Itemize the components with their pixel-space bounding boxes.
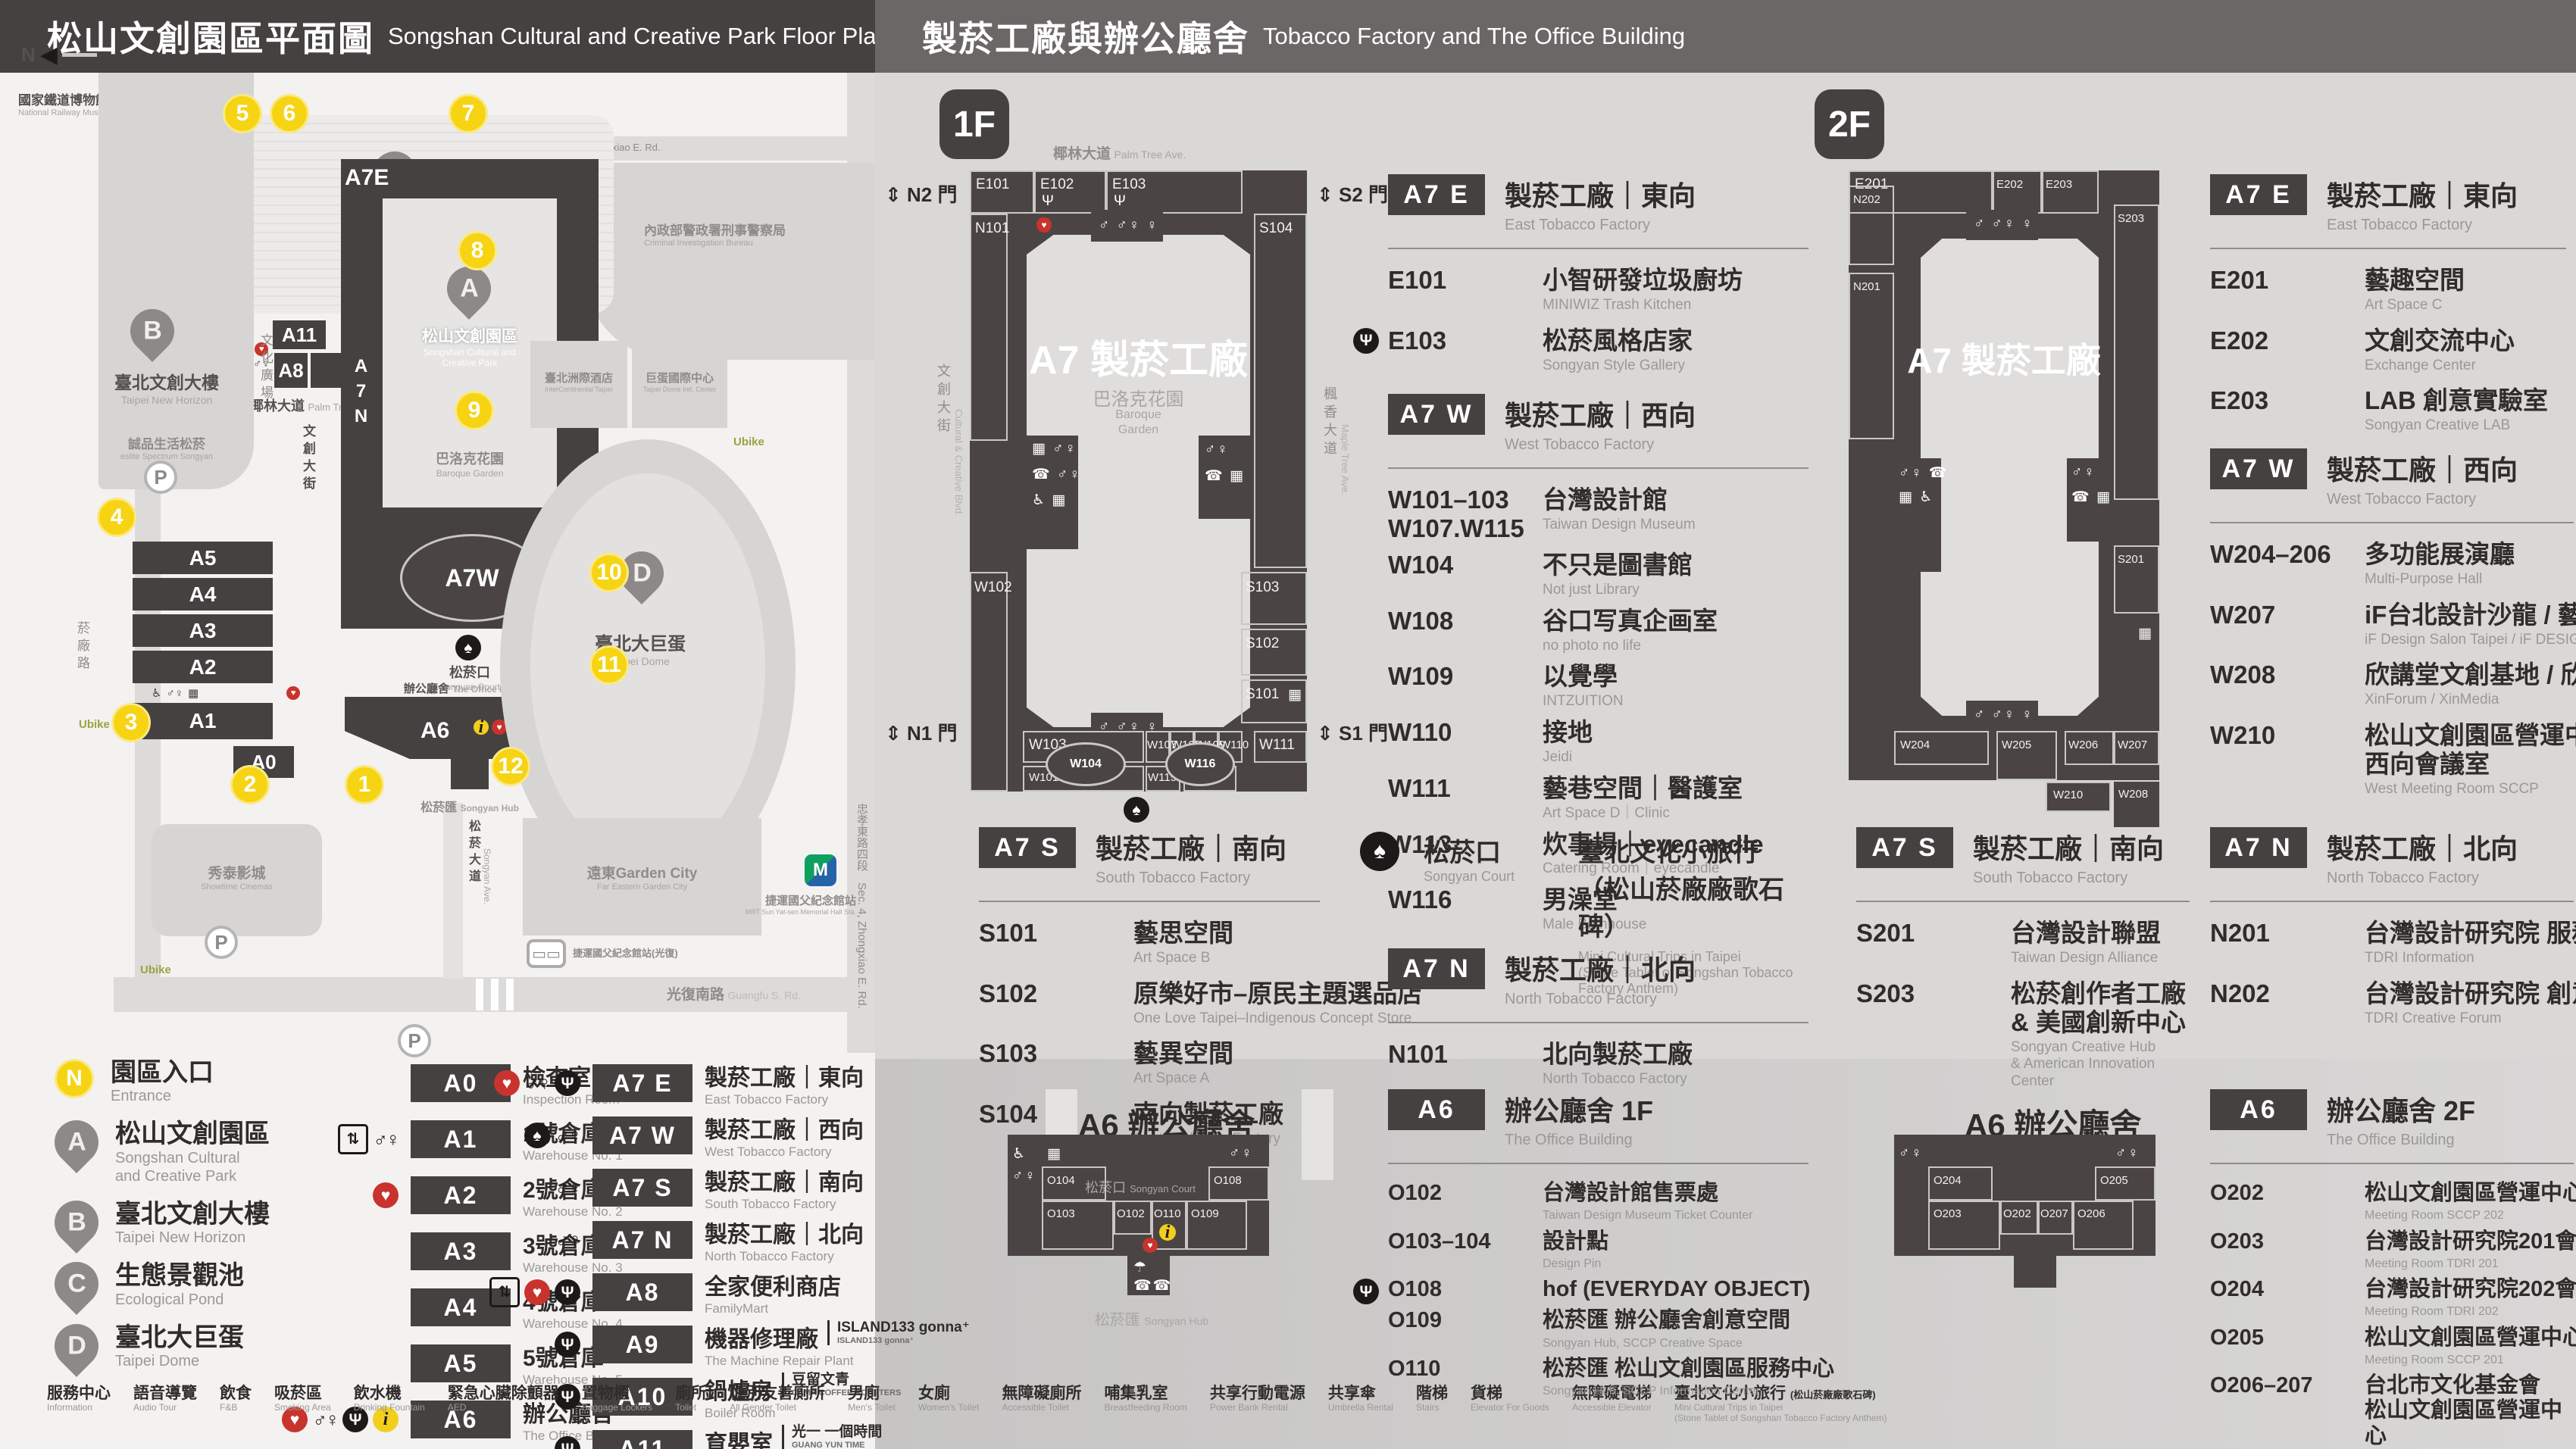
information-icon [474,720,489,735]
bldg-new-horizon [98,73,254,489]
entrance-marker-8: 8 [458,231,497,270]
toilet-icon: ♂♀ [1899,1145,1924,1162]
map-label-a7n: A7N [350,356,371,431]
street-guangfu-label: 光復南路 Guangfu S. Rd. [667,983,801,1004]
a7e-badge: A7 E [2210,174,2307,215]
section-2f-a7w: A7 W 製菸工廠｜西向 West Tobacco Factory W204–2… [2210,448,2574,810]
amenity-item: 性別友善廁所 All Gender Toilet [730,1385,825,1413]
legend-pin-row: C C 生態景觀池 Ecological Pond [55,1262,312,1308]
toilet-icon: ♂ ♂♀ ♀ [1974,707,2034,723]
legend-row: A7 W 製菸工廠｜西向 West Tobacco Factory [491,1111,870,1160]
compass-n: N [21,43,36,67]
room-row: E103 松菸風格店家 Songyan Style Gallery [1388,326,1809,375]
entrance-marker-2: 2 [230,765,270,804]
map-icons-a1: ♿ ♂♀ ▦ [152,686,300,700]
entrance-marker-6: 6 [270,94,309,133]
office1f-hub-label: 松菸匯 Songyan Hub [1076,1307,1227,1329]
toilet-icon [524,1070,550,1096]
amenity-item: 飲水機 Drinking Fountain [354,1385,425,1413]
road-songyan-ave [443,803,463,979]
parking-icon: P [205,926,238,959]
map-block-a5: A5 [133,542,273,574]
food-beverage-icon [555,1070,580,1096]
toilet-icon [555,1123,580,1148]
phone-icon: ☎ ▦ [2071,489,2112,506]
section-1f-a6: A6 辦公廳舍 1F The Office Building O102 台灣設計… [1388,1089,1809,1404]
entrance-marker-4: 4 [97,498,136,537]
food-beverage-icon [555,1332,580,1357]
amenity-item: 女廁 Women's Toilet [918,1385,980,1413]
floor-2f-badge: 2F [1815,89,1884,159]
a7s-badge: A7 S [979,827,1076,868]
room-row: W110 接地 Jeidi [1388,718,1809,767]
toilet-icon: ♂♀ [1205,442,1230,458]
compass: N ◀ [21,42,97,68]
songyan-court-icon [1360,832,1399,871]
aed-icon [1143,1238,1158,1253]
accessible-icon: ♿ [152,686,161,700]
toilet-icon: ♂♀ [2071,464,2096,481]
map-block-a2: A2 [133,651,273,683]
entrance-marker-3: 3 [111,703,151,742]
floor-1f-badge: 1F [939,89,1009,159]
room-row: S101 藝思空間Art Space B [979,919,1320,967]
amenity-item: 無障礙廁所 Accessible Toilet [1002,1385,1082,1413]
a7e-badge: A7 E [1388,174,1485,215]
entrance-marker-5: 5 [223,94,262,133]
room-row: O202 松山文創園區營運中心202會議室 Meeting Room SCCP … [2210,1181,2574,1223]
aed-icon [1036,217,1052,233]
map-pin-icon: A [45,1111,108,1173]
ubike-icon: Ubike [733,436,764,448]
room-row: O203 台灣設計研究院201會議室 Meeting Room TDRI 201 [2210,1229,2574,1272]
locker-icon: ▦ [188,686,199,700]
poi-bus-stop: 捷運國父紀念館站(光復) [573,945,678,960]
legend-pin-row: N N 園區入口 Entrance [55,1059,312,1105]
map-block-a4: A4 [133,578,273,611]
amenity-item: 共享行動電源 Power Bank Rental [1210,1385,1305,1413]
brand-label: 光一 一個時間 GUANG YUN TIME [782,1425,882,1449]
gate-s1: ⇕ S1 門 [1317,718,1388,746]
crosswalk [476,979,521,1010]
map-label-hub: 松菸匯 Songyan Hub [409,797,530,815]
plan1f-palm-label: 椰林大道 Palm Tree Ave. [1053,142,1186,163]
right-header: 製菸工廠與辦公廳舍 Tobacco Factory and The Office… [875,0,2576,73]
compass-arrow-icon: ◀ [40,42,58,68]
accessible-icon: ♿ [1012,1145,1027,1163]
left-header: 松山文創園區平面圖 Songshan Cultural and Creative… [0,0,875,73]
section-2f-a7n: A7 N 製菸工廠｜北向 North Tobacco Factory N201 … [2210,827,2574,1039]
bldg-cib [583,163,875,360]
room-row: W108 谷口写真企画室 no photo no life [1388,607,1809,655]
a7w-badge: A7 W [1388,394,1485,435]
plan1f-maple-en: Maple Tree Ave. [1340,424,1351,495]
poi-showtime: 秀泰影城 Showtime Cinemas [163,862,311,892]
toilet-icon: ♂ ♂♀ ♀ [1974,216,2034,233]
room-row: W204–206 多功能展演廳 Multi-Purpose Hall [2210,540,2574,589]
entrance-marker-12: 12 [491,747,530,786]
room-row: W101–103W107.W115 台灣設計館 Taiwan Design Mu… [1388,486,1809,543]
toilet-icon: ♂♀ [1229,1145,1254,1162]
amenity-item: 廁所 Toilet [675,1385,707,1413]
elevator-icon: ▦ [2138,625,2153,642]
street-ccblvd: 文創大街 [299,424,317,494]
legend-pins: N N 園區入口 Entrance A A 松山文創園區 Songshan Cu… [55,1059,312,1370]
section-1f-a7e: A7 E 製菸工廠｜東向 East Tobacco Factory E101 小… [1388,174,1809,386]
ubike-icon: Ubike [79,718,110,731]
plan-2f: E201 E202 E203 N202 N201 S203 S201 ▦ A7 … [1849,170,2159,780]
street-yanchang: 菸廠路 [73,621,92,673]
room-row: N201 台灣設計研究院 服務台TDRI Information [2210,919,2574,967]
map-label-a7e: A7E [345,165,389,191]
room-row: W210 松山文創園區營運中心西向會議室 West Meeting Room S… [2210,721,2574,798]
parking-icon: P [144,461,177,494]
map-pin-icon: B [45,1191,108,1254]
toilet-icon: ♂♀ [1012,1168,1037,1185]
room-w116: W116 [1165,742,1235,786]
ubike-icon: Ubike [140,963,171,976]
locker-icon: ▦ [1047,1145,1062,1163]
bus-icon: ▭▭ [527,939,566,968]
section-2f-a6: A6 辦公廳舍 2F The Office Building O202 松山文創… [2210,1089,2574,1449]
map-pin-icon: D [45,1315,108,1377]
locker-icon: ▦ ♿ [1899,489,1934,506]
room-row: S201 台灣設計聯盟 Taiwan Design Alliance [1856,919,2190,967]
restaurant-icon: Ψ [1042,193,1055,210]
legend-row: A11 育嬰室 光一 一個時間 GUANG YUN TIME The Nurse… [491,1425,870,1449]
map-block-a11: A11 [273,320,326,349]
elevator-icon: ▦ [1288,686,1303,704]
room-row: E201 藝趣空間Art Space C [2210,266,2566,314]
room-w104: W104 [1046,742,1126,786]
street-songyan-ave-en: Songyan Ave. [482,848,492,904]
a7n-badge: A7 N [1388,948,1485,989]
umbrella-icon: ☂ [1133,1259,1148,1276]
a7s-badge: A7 S [1856,827,1953,868]
map-pin-icon: N [55,1059,94,1098]
room-row: O103–104 設計點Design Pin [1388,1229,1809,1272]
parking-icon: P [398,1024,431,1057]
songyan-court-icon [1124,797,1149,823]
entrance-marker-7: 7 [449,94,488,133]
plan2f-w208: W208 [2114,782,2159,827]
street-zhongxiao-label: 忠孝東路四段 Sec. 4, Zhongxiao E. Rd. [854,803,870,1009]
a7n-badge: A7 N [2210,827,2307,868]
plan1f-ccblvd: 文創大街 [933,364,953,436]
section-2f-a7s: A7 S 製菸工廠｜南向 South Tobacco Factory S201 … [1856,827,2190,1103]
room-row: W207 iF台北設計沙龍 / 藝符設計 iF Design Salon Tai… [2210,601,2574,649]
legend-row: A7 S 製菸工廠｜南向 South Tobacco Factory [491,1163,870,1212]
brand-label: ISLAND133 gonna⁺ ISLAND133 gonna⁺ [827,1320,970,1345]
map-pin-icon: C [45,1253,108,1315]
metro-icon: M [805,854,836,886]
room-row: S203 松菸創作者工廠& 美國創新中心 Songyan Creative Hu… [1856,979,2190,1091]
toilet-icon: ♂♀ ☎ [1899,464,1948,482]
toilet-icon [555,1227,580,1253]
plan-office-1f: ♿ ♂♀ ▦ ♂♀ 松菸口 Songyan Court O104 O108 O1… [1008,1135,1269,1256]
street-cultural-plaza: 文化廣場 [256,333,275,403]
a6-badge: A6 [1388,1089,1485,1130]
legend-pin-row: D D 臺北大巨蛋 Taipei Dome [55,1324,312,1370]
map-block-a1: A1 [133,703,273,739]
street-songyan-ave: 松菸大道 [464,820,482,886]
left-header-title-en: Songshan Cultural and Creative Park Floo… [388,23,889,50]
office1f-pillar [1302,1089,1333,1180]
legend-pin-row: B B 臺北文創大樓 Taipei New Horizon [55,1201,312,1247]
songyan-court-icon [455,635,481,660]
room-row: E202 文創交流中心Exchange Center [2210,326,2566,375]
amenity-item: 服務中心 Information [47,1385,111,1413]
aed-icon [524,1279,550,1305]
phone-icon: ☎ ♂♀ [1032,466,1081,483]
room-row: E203 LAB 創意實驗室Songyan Creative LAB [2210,386,2566,435]
room-row: O109 松菸匯 辦公廳舍創意空間Songyan Hub, SCCP Creat… [1388,1308,1809,1351]
aed-icon [373,1182,399,1208]
toilet-icon: ♂♀ [166,687,183,700]
toilet-icon [555,1175,580,1201]
a7w-badge: A7 W [2210,448,2307,489]
right-header-title-zh: 製菸工廠與辦公廳舍 [922,11,1249,61]
food-beverage-icon [555,1279,580,1305]
accessible-icon: ♿ ▦ [1032,492,1067,509]
information-icon [1159,1224,1176,1241]
plan1f-maple: 楓香大道 [1320,386,1340,459]
office1f-stub: ☂ ☎☎ [1127,1256,1170,1295]
phone-icon: ☎ ▦ [1205,467,1245,485]
room-row: W208 欣講堂文創基地 / 欣傳媒 XinForum / XinMedia [2210,660,2574,709]
amenity-item: 飲食 F&B [220,1385,252,1413]
legend-row: A7 E 製菸工廠｜東向 East Tobacco Factory [491,1059,870,1107]
section-1f-a7n: A7 N 製菸工廠｜北向 North Tobacco Factory N101 … [1388,948,1809,1101]
gate-n2: ⇕ N2 門 [885,180,957,208]
room-row: O108 hof (EVERYDAY OBJECT) [1388,1277,1809,1302]
amenity-item: 哺集乳室 Breastfeeding Room [1105,1385,1187,1413]
room-row: O204 台灣設計研究院202會議室 Meeting Room TDRI 202 [2210,1277,2574,1319]
room-row: W109 以覺學 INTZUITION [1388,662,1809,710]
room-row: N202 台灣設計研究院 創意劇場TDRI Creative Forum [2210,979,2574,1028]
amenity-item: 男廁 Men's Toilet [848,1385,896,1413]
poi-new-horizon: 臺北文創大樓 Taipei New Horizon [91,368,242,406]
a6-badge: A6 [2210,1089,2307,1130]
amenity-item: 語音導覽 Audio Tour [133,1385,197,1413]
room-row: E101 小智研發垃圾廚坊 MINIWIZ Trash Kitchen [1388,266,1809,314]
floor-plan-poster: 松山文創園區平面圖 Songshan Cultural and Creative… [0,0,2576,1449]
poi-garden-city: 遠東Garden City Far Eastern Garden City [546,862,739,892]
legend-row: A9 機器修理廠 ISLAND133 gonna⁺ ISLAND133 gonn… [491,1320,870,1369]
room-row: N101 北向製菸工廠North Tobacco Factory [1388,1040,1809,1088]
plan-1f: E101 E102 E103 Ψ Ψ N101 S104 S103 S102 S… [970,170,1307,792]
room-row: O110 松菸匯 松山文創園區服務中心Songyan Hub, SCCP Inf… [1388,1357,1809,1399]
room-row: O205 松山文創園區營運中心201會議室 Meeting Room SCCP … [2210,1326,2574,1368]
aed-icon [286,686,300,700]
room-row: S102 原樂好市–原民主題選品店One Love Taipei–Indigen… [979,979,1320,1028]
poi-mrt: 捷運國父紀念館站 MRT Sun Yat-sen Memorial Hall S… [705,892,856,916]
toilet-icon: ♂ ♂♀ ♀ [1099,217,1159,234]
entrance-marker-10: 10 [589,553,629,592]
map-label-baroque: 巴洛克花園 Baroque Garden [383,448,557,479]
room-row: O206–207 台北市文化基金會松山文創園區營運中心 Taipei Cultu… [2210,1373,2574,1449]
gate-n1: ⇕ N1 門 [885,718,957,746]
room-row: O102 台灣設計館售票處Taiwan Design Museum Ticket… [1388,1181,1809,1223]
legend-pin-row: A A 松山文創園區 Songshan Cultural and Creativ… [55,1120,312,1185]
elevator-icon [489,1277,520,1307]
amenity-item: 共享傘 Umbrella Rental [1328,1385,1393,1413]
room-row: W104 不只是圖書館 Not just Library [1388,551,1809,599]
right-header-title-en: Tobacco Factory and The Office Building [1263,23,1685,50]
room-row: S103 藝異空間Art Space A [979,1039,1320,1088]
map-label-a6: A6 [420,718,449,744]
entrance-marker-11: 11 [589,645,629,685]
poi-eslite: 誠品生活松菸 eslite Spectrum Songyan [91,433,242,461]
amenity-item: 置物櫃 Baggage Lockers [582,1385,652,1413]
legend-row: A7 N 製菸工廠｜北向 North Tobacco Factory [491,1216,870,1264]
section-2f-a7e: A7 E 製菸工廠｜東向 East Tobacco Factory E201 藝… [2210,174,2566,447]
phone-icon: ☎☎ [1133,1277,1172,1294]
poi-dome-center: 巨蛋國際中心 Taipei Dome Intl. Center [635,370,724,393]
amenity-item: 緊急心臟除顫器 AED [448,1385,559,1413]
office2f-stub [2014,1256,2056,1288]
legend-row: A8 全家便利商店 FamilyMart [491,1268,870,1316]
map-block-a8: A8 [274,353,308,388]
toilet-icon [373,1126,399,1152]
compass-line [62,53,97,57]
map-block-a3: A3 [133,614,273,647]
poi-hotel: 臺北洲際酒店 InterContinental Taipei [533,370,624,393]
gate-s2: ⇕ S2 門 [1317,180,1388,208]
map-a6-stub [451,759,489,789]
entrance-marker-1: 1 [345,765,384,804]
food-beverage-icon [1353,328,1379,354]
toilet-icon: ♂♀ [2115,1145,2140,1162]
amenity-item: 吸菸區 Smoking Area [274,1385,331,1413]
plan-office-2f: ♂♀ ♂♀ O204 O205 O203 O202 O207 O206 [1894,1135,2156,1256]
poi-cib: 內政部警政署刑事警察局 Criminal Investigation Burea… [644,220,786,248]
entrance-marker-9: 9 [455,391,494,430]
locker-icon: ▦ ♂♀ [1032,440,1077,457]
plan1f-ccblvd-en: Cultural & Creative Blvd. [953,409,964,517]
room-row: W111 藝巷空間｜醫護室 Art Space D｜Clinic [1388,774,1809,823]
food-beverage-icon [1353,1279,1379,1304]
songyan-court-icon [524,1123,550,1148]
elevator-icon [338,1124,368,1154]
restaurant-icon: Ψ [1114,193,1127,210]
food-beverage-icon [555,1436,580,1449]
plan2f-w210: W210 [2046,782,2111,812]
aed-icon [494,1070,520,1096]
